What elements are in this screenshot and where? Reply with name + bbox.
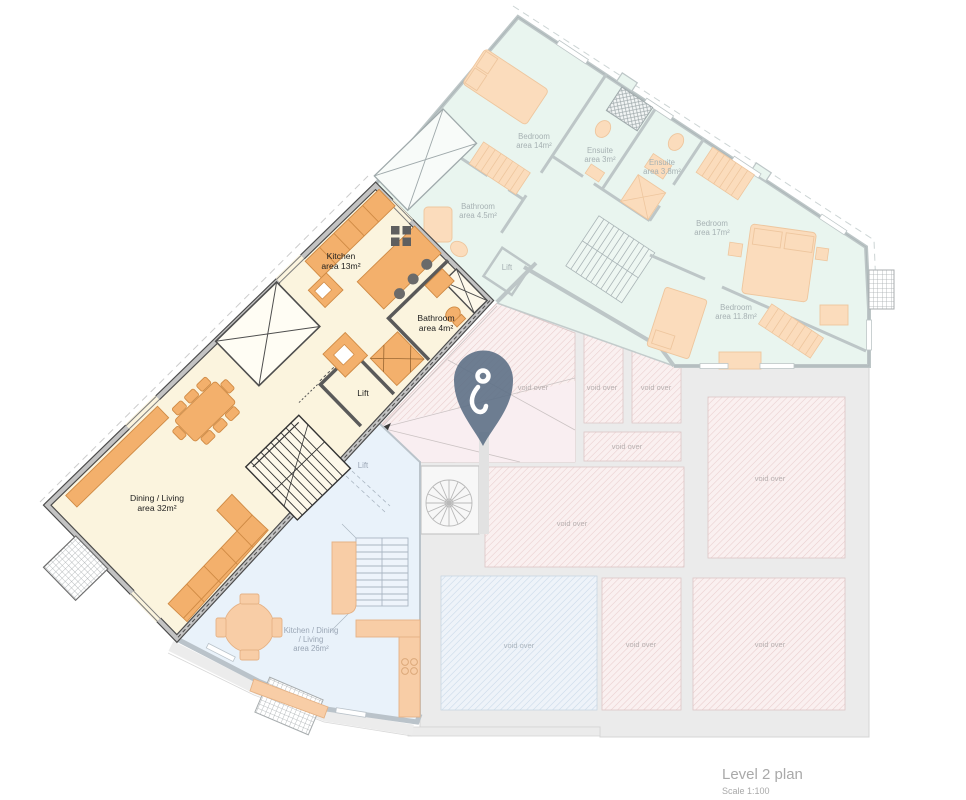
svg-text:/ Living: / Living xyxy=(299,635,324,644)
svg-text:Kitchen / Dining: Kitchen / Dining xyxy=(284,626,339,635)
svg-text:void over: void over xyxy=(755,640,786,649)
svg-text:void over: void over xyxy=(755,474,786,483)
svg-text:void over: void over xyxy=(557,519,588,528)
svg-text:void over: void over xyxy=(587,383,618,392)
svg-text:void over: void over xyxy=(612,442,643,451)
svg-text:Bathroom: Bathroom xyxy=(461,202,495,211)
svg-text:Ensuite: Ensuite xyxy=(649,158,675,167)
svg-text:Kitchen: Kitchen xyxy=(327,251,356,261)
svg-text:area 32m²: area 32m² xyxy=(137,503,176,513)
svg-text:Ensuite: Ensuite xyxy=(587,146,613,155)
svg-text:Lift: Lift xyxy=(502,263,513,272)
svg-text:area 26m²: area 26m² xyxy=(293,644,329,653)
svg-text:area 3.8m²: area 3.8m² xyxy=(643,167,681,176)
svg-text:area 4.5m²: area 4.5m² xyxy=(459,211,497,220)
svg-text:void over: void over xyxy=(518,383,549,392)
svg-text:area 4m²: area 4m² xyxy=(419,323,454,333)
svg-text:area 3m²: area 3m² xyxy=(584,155,616,164)
svg-text:Lift: Lift xyxy=(357,388,369,398)
svg-text:Scale 1:100: Scale 1:100 xyxy=(722,786,770,796)
svg-text:Lift: Lift xyxy=(358,461,369,470)
svg-text:Bedroom: Bedroom xyxy=(518,132,550,141)
svg-text:void over: void over xyxy=(626,640,657,649)
svg-text:Bedroom: Bedroom xyxy=(696,219,728,228)
svg-text:area 17m²: area 17m² xyxy=(694,228,730,237)
svg-text:area 14m²: area 14m² xyxy=(516,141,552,150)
svg-text:void over: void over xyxy=(504,641,535,650)
svg-text:void over: void over xyxy=(641,383,672,392)
svg-text:Bathroom: Bathroom xyxy=(417,313,454,323)
svg-text:Level 2 plan: Level 2 plan xyxy=(722,766,803,783)
svg-text:area 13m²: area 13m² xyxy=(321,261,360,271)
svg-text:Bedroom: Bedroom xyxy=(720,303,752,312)
svg-text:area 11.8m²: area 11.8m² xyxy=(715,312,757,321)
svg-text:Dining / Living: Dining / Living xyxy=(130,493,184,503)
